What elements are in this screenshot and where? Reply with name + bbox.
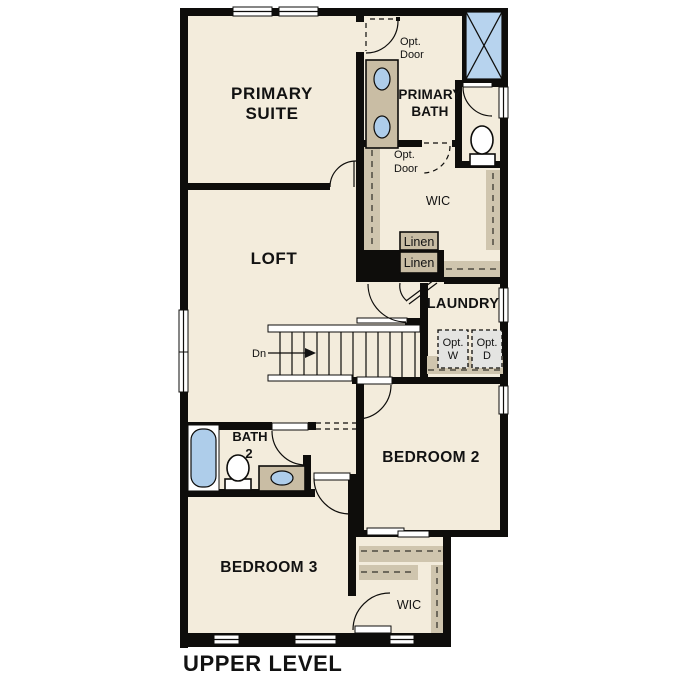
primary-suite-label: SUITE bbox=[245, 104, 298, 123]
window-marker bbox=[279, 7, 318, 16]
opt-dryer-label: D bbox=[483, 350, 491, 362]
primary-bath-label: PRIMARY bbox=[398, 87, 461, 102]
window-marker bbox=[233, 7, 272, 16]
bedroom2-label: BEDROOM 2 bbox=[382, 449, 479, 466]
linen-label: Linen bbox=[404, 235, 435, 249]
bedroom3-label: BEDROOM 3 bbox=[220, 559, 317, 576]
stairs-dn-label: Dn bbox=[252, 348, 266, 360]
page-title: UPPER LEVEL bbox=[183, 651, 342, 676]
window-marker bbox=[499, 87, 508, 118]
opt-door-label: Opt. bbox=[400, 36, 421, 48]
window-marker bbox=[295, 635, 336, 644]
wic-upper-label: WIC bbox=[426, 194, 450, 208]
opt-door-label: Door bbox=[394, 163, 418, 175]
opt-dryer-box bbox=[472, 330, 502, 368]
window-marker bbox=[179, 310, 188, 352]
primary-suite-label: PRIMARY bbox=[231, 84, 313, 103]
double-vanity-icon bbox=[366, 60, 398, 148]
bath2-label: BATH bbox=[232, 429, 267, 444]
shower-icon bbox=[462, 8, 506, 83]
toilet-icon bbox=[470, 126, 495, 166]
opt-washer-label: Opt. bbox=[443, 337, 464, 349]
opening-marker bbox=[398, 531, 429, 537]
window-marker bbox=[499, 288, 508, 322]
bath2-label: 2 bbox=[245, 446, 252, 461]
linen-label: Linen bbox=[404, 256, 435, 270]
bathtub-icon bbox=[188, 425, 219, 491]
opt-door-label: Opt. bbox=[394, 149, 415, 161]
sink-icon bbox=[271, 471, 293, 485]
window-marker bbox=[499, 386, 508, 414]
loft-label: LOFT bbox=[251, 249, 298, 268]
window-marker bbox=[179, 352, 188, 392]
sink-icon bbox=[374, 68, 390, 90]
wic-lower-label: WIC bbox=[397, 598, 421, 612]
opt-washer-label: W bbox=[448, 350, 459, 362]
sink-icon bbox=[374, 116, 390, 138]
vanity-icon bbox=[259, 466, 305, 491]
opt-door-label: Door bbox=[400, 49, 424, 61]
floor-plan-page: PRIMARY SUITE PRIMARY BATH Opt. Door Opt… bbox=[0, 0, 687, 687]
opt-dryer-label: Opt. bbox=[477, 337, 498, 349]
floor-plan-drawing: PRIMARY SUITE PRIMARY BATH Opt. Door Opt… bbox=[0, 0, 687, 687]
laundry-label: LAUNDRY bbox=[427, 296, 499, 312]
window-marker bbox=[214, 635, 239, 644]
window-marker bbox=[390, 635, 414, 644]
primary-bath-label: BATH bbox=[411, 104, 448, 119]
opt-washer-box bbox=[438, 330, 468, 368]
